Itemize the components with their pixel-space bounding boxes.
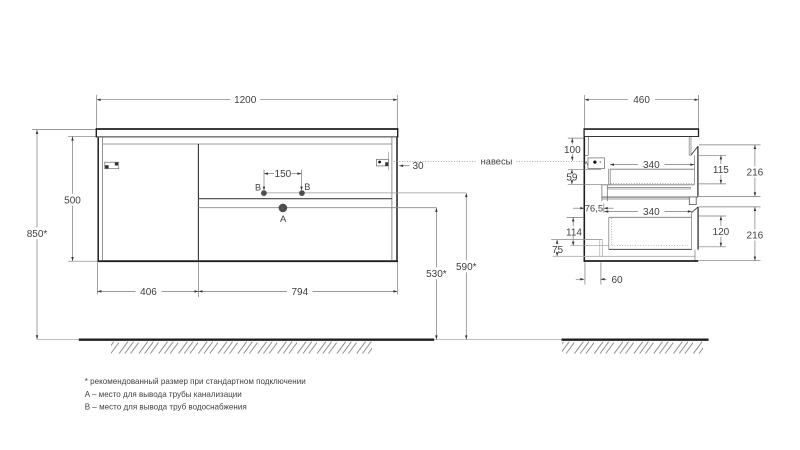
svg-text:76,5: 76,5 (585, 204, 604, 215)
svg-text:B: B (304, 182, 310, 192)
svg-text:794: 794 (291, 287, 308, 298)
svg-text:1200: 1200 (234, 95, 257, 106)
svg-text:500: 500 (64, 196, 81, 207)
svg-text:115: 115 (713, 165, 729, 176)
svg-text:навесы: навесы (481, 157, 513, 167)
svg-text:A – место для вывода трубы кан: A – место для вывода трубы канализации (85, 390, 242, 399)
svg-text:340: 340 (643, 207, 660, 218)
svg-text:B – место для вывода труб водо: B – место для вывода труб водоснабжения (85, 403, 247, 412)
svg-text:590*: 590* (456, 262, 477, 273)
svg-text:216: 216 (747, 167, 764, 178)
svg-text:A: A (280, 214, 287, 225)
svg-text:30: 30 (413, 161, 425, 172)
svg-text:59: 59 (566, 172, 578, 183)
svg-text:850*: 850* (27, 229, 48, 240)
svg-text:150: 150 (275, 169, 292, 180)
svg-text:460: 460 (633, 95, 650, 106)
svg-text:120: 120 (713, 227, 730, 238)
svg-text:340: 340 (643, 160, 660, 171)
svg-text:B: B (255, 183, 261, 193)
svg-text:216: 216 (747, 230, 764, 241)
svg-text:75: 75 (552, 245, 564, 256)
svg-text:406: 406 (140, 287, 157, 298)
svg-text:114: 114 (566, 228, 582, 239)
svg-text:530*: 530* (426, 269, 447, 280)
svg-text:60: 60 (612, 275, 624, 286)
svg-text:* рекомендованный размер при с: * рекомендованный размер при стандартном… (85, 377, 306, 386)
svg-text:100: 100 (564, 145, 581, 156)
